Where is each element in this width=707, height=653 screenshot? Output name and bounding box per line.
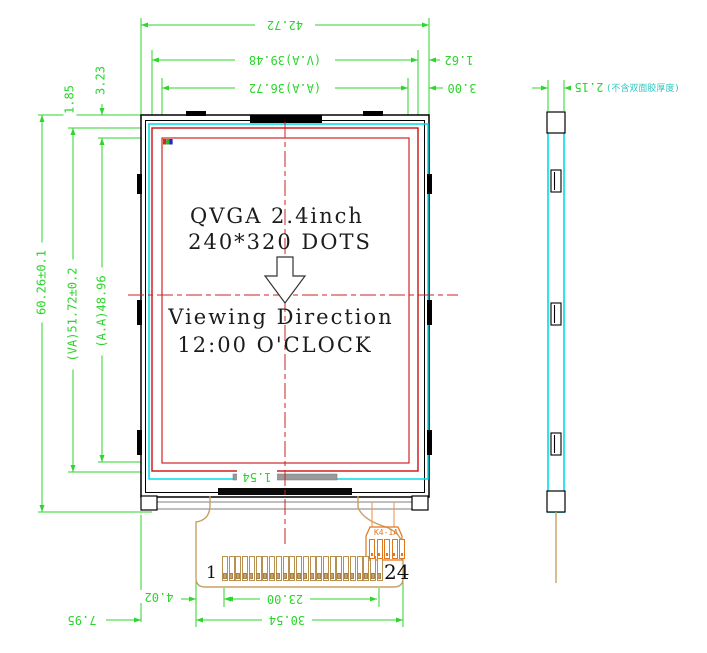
fpc-pin [269, 556, 275, 581]
dim-va-width: (V.A)39.48 [235, 53, 335, 66]
fpc-pin [350, 556, 356, 581]
fpc-pin [256, 556, 262, 581]
side-top-cap [547, 112, 565, 133]
fpc-pin [316, 556, 322, 581]
fpc-pin [377, 556, 383, 581]
fpc-pin [330, 556, 336, 581]
dim-overall-width: 42.72 [255, 18, 315, 31]
component-pad [399, 539, 405, 559]
side-view [547, 112, 565, 583]
dim-aa-width: (A.A)36.72 [235, 81, 335, 94]
viewing-direction-text: Viewing Direction [166, 306, 396, 328]
fpc-pin [323, 556, 329, 581]
side-bottom-cap [547, 491, 565, 512]
rgb-pixel-marker [163, 139, 173, 145]
fpc-pin [262, 556, 268, 581]
dim-edge-to-aa-right: 3.00 [443, 81, 481, 94]
fpc-pin [289, 556, 295, 581]
component-pad [384, 539, 390, 559]
pin-1-label: 1 [206, 563, 217, 583]
display-spec-line1: QVGA 2.4inch [177, 205, 377, 227]
dim-bar-offset: 1.54 [237, 470, 277, 483]
lcd-module-mechanical-drawing: 42.72 (V.A)39.48 (A.A)36.72 1.62 3.00 60… [0, 0, 707, 653]
fpc-pin [363, 556, 369, 581]
fpc-pin [336, 556, 342, 581]
dim-edge-to-va-right: 1.62 [440, 53, 478, 66]
dim-edge-to-aa-top: 3.23 [95, 62, 108, 100]
clock-direction-text: 12:00 O'CLOCK [165, 334, 385, 356]
fpc-pin [283, 556, 289, 581]
fpc-pin [343, 556, 349, 581]
pin-24-label: 24 [384, 560, 409, 584]
fpc-pin [249, 556, 255, 581]
component-pad [392, 539, 398, 559]
dim-aa-height: (A.A)48.96 [96, 268, 109, 356]
fpc-pin-row [222, 556, 383, 581]
component-pad [369, 539, 375, 559]
fpc-pin [310, 556, 316, 581]
display-spec-line2: 240*320 DOTS [180, 231, 380, 253]
component-pads [369, 539, 405, 559]
component-label: K4-1A [368, 528, 404, 537]
dim-va-height: (VA)51.72±0.2 [67, 260, 80, 370]
fpc-pin [357, 556, 363, 581]
fpc-pin [296, 556, 302, 581]
dim-pin-span: 23.00 [260, 592, 310, 605]
dim-edge-to-fpc: 7.95 [62, 613, 102, 626]
thickness-note: (不含双面胶厚度) [606, 81, 680, 94]
dim-edge-to-va-top: 1.85 [64, 81, 77, 119]
fpc-pin [303, 556, 309, 581]
component-pad [377, 539, 383, 559]
dim-overall-height: 60.26±0.1 [36, 243, 49, 323]
dim-fpc-width: 30.54 [262, 613, 312, 626]
fpc-pin [222, 556, 228, 581]
fpc-pin [276, 556, 282, 581]
dim-thickness: 2.15 [571, 80, 607, 93]
fpc-pin [370, 556, 376, 581]
fpc-pin [242, 556, 248, 581]
fpc-pin [235, 556, 241, 581]
fpc-pin [229, 556, 235, 581]
dim-fpc-pad-margin: 4.02 [139, 590, 179, 603]
